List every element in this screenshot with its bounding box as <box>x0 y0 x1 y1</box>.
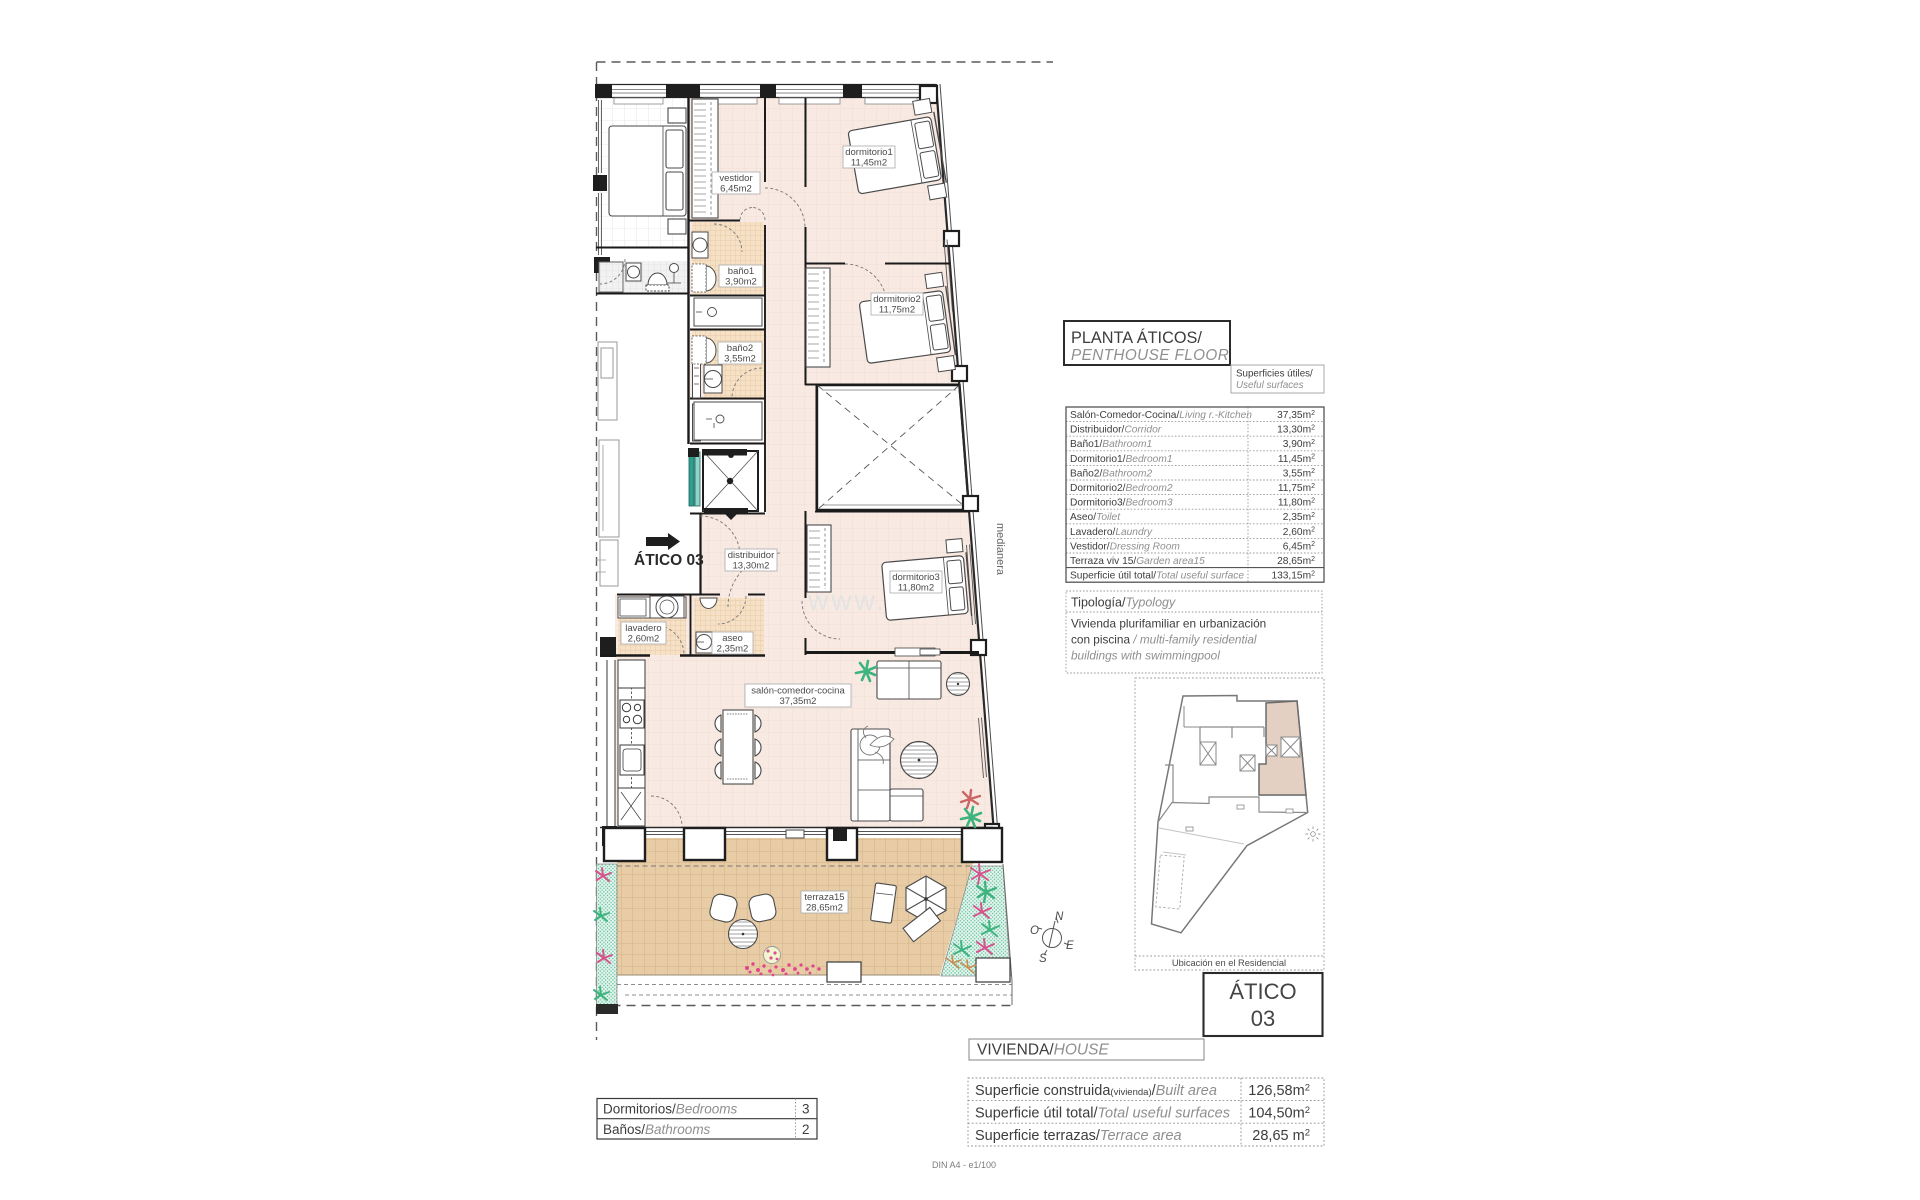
svg-text:Distribuidor/Corridor: Distribuidor/Corridor <box>1070 425 1162 436</box>
svg-text:2: 2 <box>802 1122 810 1137</box>
svg-text:Superficie útil total/Total us: Superficie útil total/Total useful surfa… <box>975 1106 1230 1122</box>
svg-text:terraza15: terraza15 <box>804 892 844 903</box>
svg-text:buildings with swimmingpool: buildings with swimmingpool <box>1071 649 1220 663</box>
svg-text:Baños/Bathrooms: Baños/Bathrooms <box>603 1122 711 1137</box>
svg-text:ÁTICO 03: ÁTICO 03 <box>634 552 704 569</box>
svg-text:S: S <box>1039 953 1047 965</box>
svg-text:28,65m2: 28,65m2 <box>806 903 843 914</box>
svg-text:O: O <box>1030 925 1039 937</box>
svg-text:Superficie construida(vivienda: Superficie construida(vivienda)/Built ar… <box>975 1083 1217 1099</box>
svg-text:baño1: baño1 <box>728 266 754 277</box>
svg-text:Lavadero/Laundry: Lavadero/Laundry <box>1070 527 1153 538</box>
svg-text:2,35m2: 2,35m2 <box>717 644 749 655</box>
svg-text:2,60m2: 2,60m2 <box>628 634 660 645</box>
svg-text:104,50m2: 104,50m2 <box>1248 1105 1310 1122</box>
svg-text:Dormitorio1/Bedroom1: Dormitorio1/Bedroom1 <box>1070 454 1173 465</box>
svg-text:11,80m2: 11,80m2 <box>1278 497 1315 508</box>
svg-text:03: 03 <box>1251 1006 1275 1031</box>
svg-text:133,15m2: 133,15m2 <box>1271 570 1315 581</box>
svg-text:Superficies útiles/: Superficies útiles/ <box>1236 369 1313 380</box>
svg-text:Tipología/Typology: Tipología/Typology <box>1071 596 1176 610</box>
svg-text:Baño1/Bathroom1: Baño1/Bathroom1 <box>1070 439 1152 450</box>
svg-text:PENTHOUSE FLOOR: PENTHOUSE FLOOR <box>1071 347 1229 364</box>
svg-text:Vestidor/Dressing Room: Vestidor/Dressing Room <box>1070 541 1180 552</box>
svg-text:2,35m2: 2,35m2 <box>1283 512 1315 523</box>
svg-text:11,80m2: 11,80m2 <box>898 583 934 594</box>
svg-text:aseo: aseo <box>722 633 743 644</box>
svg-text:Terraza viv 15/Garden area15: Terraza viv 15/Garden area15 <box>1070 556 1205 567</box>
svg-text:Dormitorios/Bedrooms: Dormitorios/Bedrooms <box>603 1102 738 1117</box>
svg-text:126,58m2: 126,58m2 <box>1248 1083 1310 1100</box>
svg-text:28,65 m2: 28,65 m2 <box>1252 1128 1310 1145</box>
svg-text:Salón-Comedor-Cocina/Living r.: Salón-Comedor-Cocina/Living r.-Kitchen <box>1070 410 1252 421</box>
svg-text:E: E <box>1066 940 1074 952</box>
svg-text:37,35m2: 37,35m2 <box>780 696 817 707</box>
svg-text:13,30m2: 13,30m2 <box>1277 424 1315 435</box>
svg-text:3,55m2: 3,55m2 <box>1283 468 1315 479</box>
svg-text:28,65m2: 28,65m2 <box>1277 556 1315 567</box>
svg-text:3,90m2: 3,90m2 <box>725 277 757 288</box>
svg-text:37,35m2: 37,35m2 <box>1277 410 1315 421</box>
svg-text:lavadero: lavadero <box>625 623 661 634</box>
svg-text:salón-comedor-cocina: salón-comedor-cocina <box>751 686 845 697</box>
svg-text:13,30m2: 13,30m2 <box>733 561 770 572</box>
svg-text:Dormitorio3/Bedroom3: Dormitorio3/Bedroom3 <box>1070 498 1173 509</box>
svg-text:Aseo/Toilet: Aseo/Toilet <box>1070 512 1121 523</box>
svg-text:vestidor: vestidor <box>719 173 752 184</box>
svg-text:6,45m2: 6,45m2 <box>720 184 752 195</box>
svg-text:11,45m2: 11,45m2 <box>851 158 887 169</box>
svg-text:dormitorio3: dormitorio3 <box>892 572 940 583</box>
svg-text:ÁTICO: ÁTICO <box>1229 979 1296 1004</box>
svg-text:2,60m2: 2,60m2 <box>1283 527 1315 538</box>
svg-text:PLANTA ÁTICOS/: PLANTA ÁTICOS/ <box>1071 328 1202 347</box>
svg-text:11,75m2: 11,75m2 <box>1278 483 1315 494</box>
svg-text:dormitorio1: dormitorio1 <box>845 147 893 158</box>
svg-text:11,45m2: 11,45m2 <box>1278 454 1315 465</box>
svg-text:DIN A4 - e1/100: DIN A4 - e1/100 <box>932 1160 996 1170</box>
svg-text:con piscina / multi-family re: con piscina / multi-family residential <box>1071 633 1257 647</box>
svg-text:Useful surfaces: Useful surfaces <box>1236 380 1304 391</box>
svg-text:Baño2/Bathroom2: Baño2/Bathroom2 <box>1070 468 1152 479</box>
svg-text:6,45m2: 6,45m2 <box>1283 541 1315 552</box>
svg-text:Ubicación en el Residencial: Ubicación en el Residencial <box>1172 958 1286 968</box>
svg-text:Dormitorio2/Bedroom2: Dormitorio2/Bedroom2 <box>1070 483 1173 494</box>
svg-text:baño2: baño2 <box>727 343 753 354</box>
svg-text:dormitorio2: dormitorio2 <box>873 294 921 305</box>
svg-text:Superficie terrazas/Terrace ar: Superficie terrazas/Terrace area <box>975 1128 1182 1144</box>
svg-text:Superficie útil total/Total us: Superficie útil total/Total useful surfa… <box>1070 571 1244 582</box>
svg-text:VIVIENDA/HOUSE: VIVIENDA/HOUSE <box>977 1042 1109 1059</box>
svg-text:N: N <box>1055 911 1064 923</box>
svg-text:3: 3 <box>802 1102 810 1117</box>
svg-text:Vivienda plurifamiliar en urba: Vivienda plurifamiliar en urbanización <box>1071 617 1266 631</box>
svg-text:medianera: medianera <box>994 523 1006 576</box>
svg-text:11,75m2: 11,75m2 <box>879 305 915 316</box>
svg-text:www.: www. <box>807 585 887 616</box>
svg-text:3,90m2: 3,90m2 <box>1283 439 1315 450</box>
svg-text:3,55m2: 3,55m2 <box>724 354 756 365</box>
svg-text:distribuidor: distribuidor <box>728 550 774 561</box>
